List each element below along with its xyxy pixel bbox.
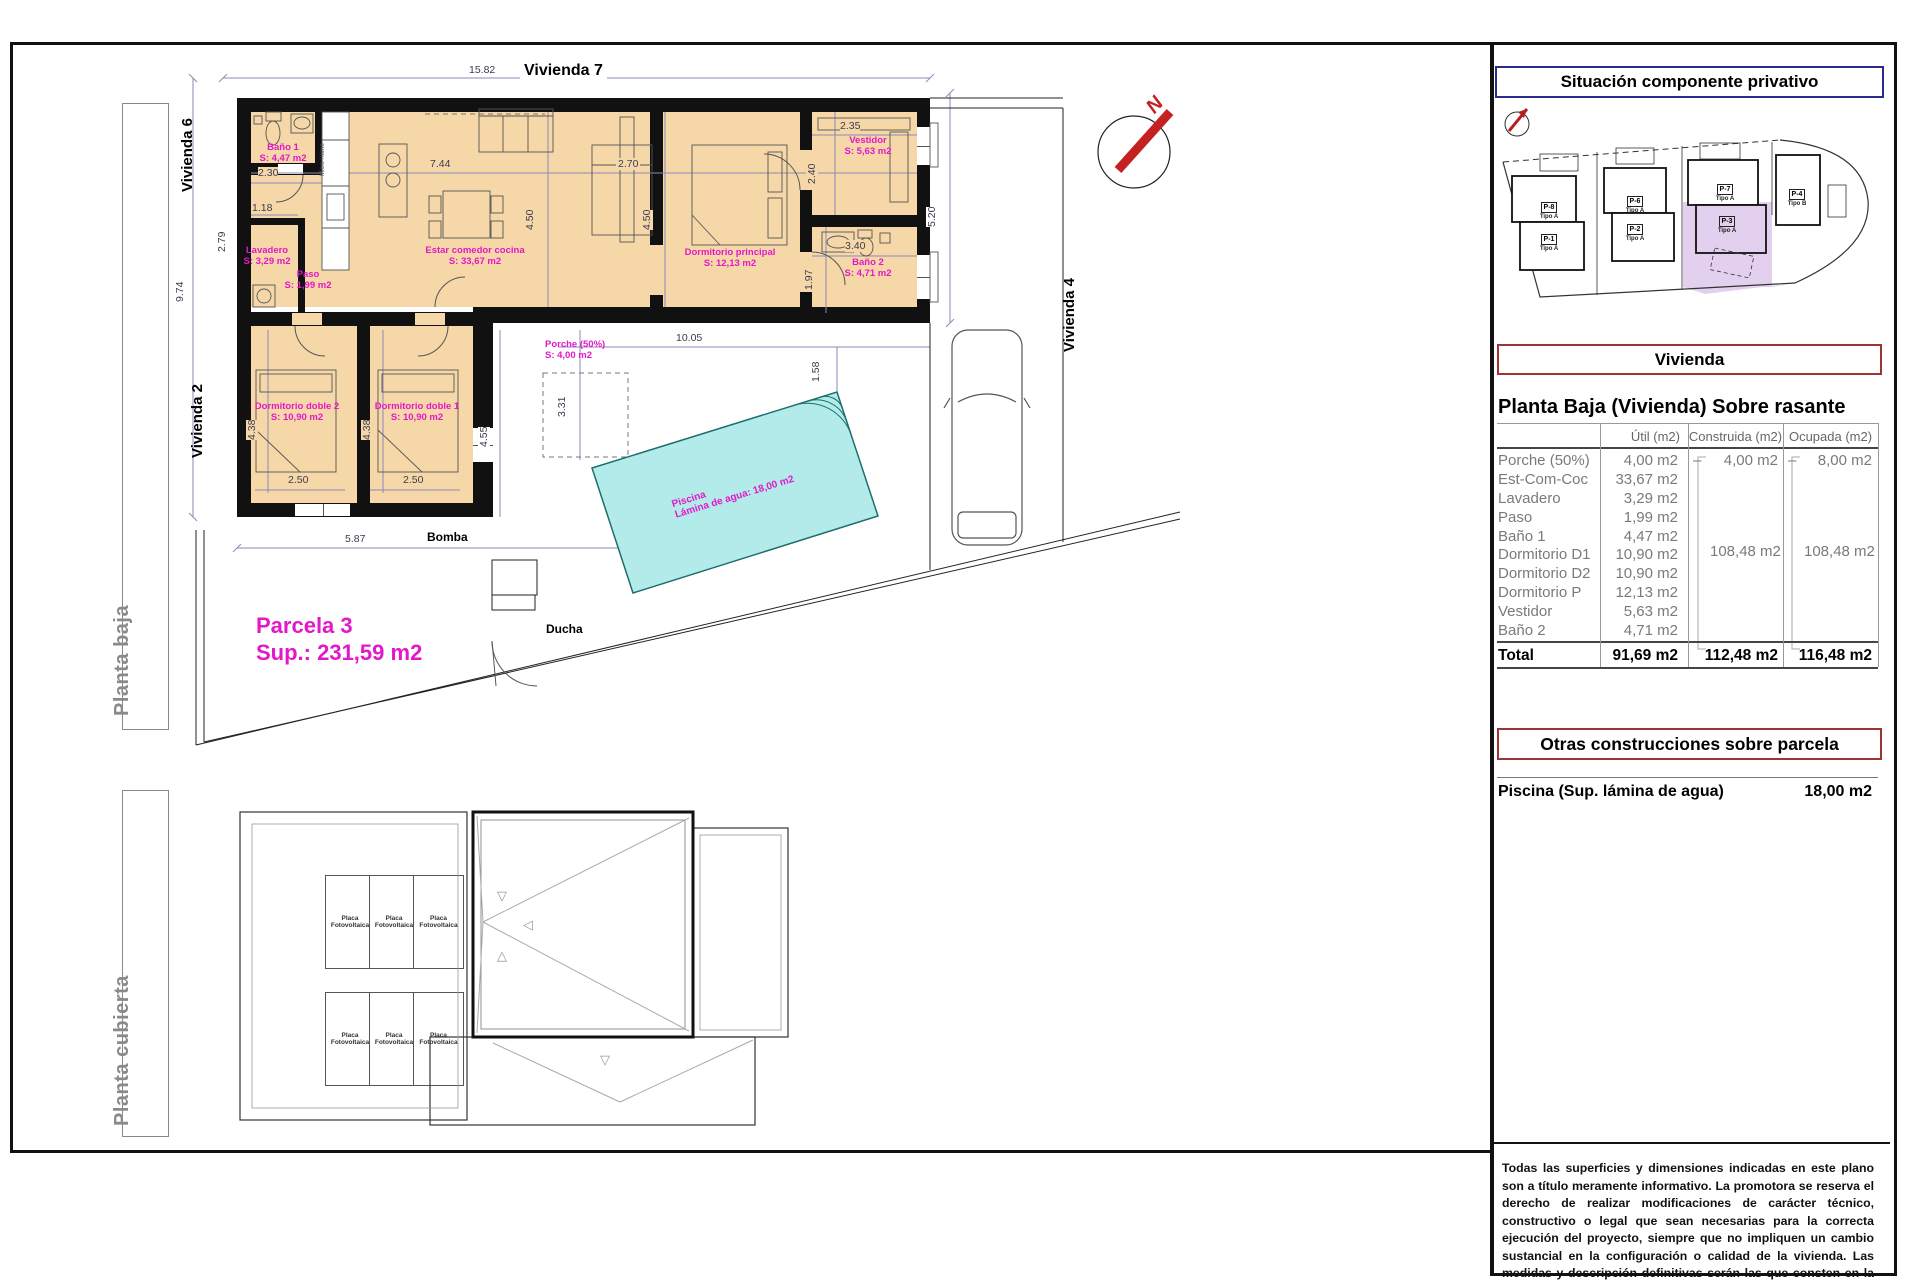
table-line [1878,423,1879,667]
room-bano2: Baño 2 S: 4,71 m2 [828,258,908,279]
construida-value: 4,00 m2 [1724,452,1778,471]
dim: 2.70 [616,158,640,170]
vivienda6-label: Vivienda 6 [180,118,196,192]
vivienda2-label: Vivienda 2 [190,384,206,458]
parcel-tag-p2: P-2 Tipo A [1620,218,1650,243]
parcel-tipo: Tipo A [1620,236,1650,243]
table-line [1783,423,1784,667]
util-value: 4,00 m2 [1600,452,1678,471]
room-area: S: 4,71 m2 [845,268,892,279]
disclaimer-text: Todas las superficies y dimensiones indi… [1502,1160,1874,1280]
util-value: 4,71 m2 [1600,622,1678,641]
otras-divider [1497,777,1878,778]
parcel-id: P-6 [1627,196,1644,207]
room-porche: Porche (50%) S: 4,00 m2 [545,340,631,361]
parcel-tag-p3: P-3 Tipo A [1712,210,1742,235]
room-area: S: 5,63 m2 [845,146,892,157]
util-value: 3,29 m2 [1600,490,1678,509]
dim: 4.38 [246,420,258,440]
bomba-label: Bomba [424,530,471,544]
table-line [1688,423,1689,667]
parcela-name: Parcela 3 [256,612,422,639]
dim: 10.05 [676,332,702,344]
row-label: Baño 2 [1498,622,1598,641]
col-header-ocupada: Ocupada (m2) [1783,429,1878,444]
vivienda-titlebox: Vivienda [1497,344,1882,375]
row-label: Lavadero [1498,490,1598,509]
room-vestidor: Vestidor S: 5,63 m2 [828,136,908,157]
room-paso: Paso S: 1,99 m2 [278,270,338,291]
room-area: S: 10,90 m2 [391,412,443,423]
util-value: 1,99 m2 [1600,509,1678,528]
piscina-row-value: 18,00 m2 [1772,783,1872,801]
room-name: Lavadero [246,245,288,256]
table-col-util: 4,00 m2 33,67 m2 3,29 m2 1,99 m2 4,47 m2… [1600,452,1678,641]
otras-titlebox: Otras construcciones sobre parcela [1497,728,1882,760]
dash: – [1693,452,1701,471]
vivienda4-label: Vivienda 4 [1062,278,1078,352]
total-util: 91,69 m2 [1600,647,1678,665]
dim: 4.50 [524,210,536,230]
room-area: S: 4,47 m2 [260,153,307,164]
room-area: S: 12,13 m2 [704,258,756,269]
dim: 1.18 [252,202,272,214]
col-header-construida: Construida (m2) [1688,429,1783,444]
row-label: Dormitorio P [1498,584,1598,603]
parcel-tipo: Tipo B [1782,201,1812,208]
construida-porche: – 4,00 m2 [1693,452,1778,471]
room-name: Dormitorio doble 2 [255,401,339,412]
room-lavadero: Lavadero S: 3,29 m2 [230,246,304,267]
table-line [1497,667,1878,669]
util-value: 10,90 m2 [1600,546,1678,565]
row-label: Est-Com-Coc [1498,471,1598,490]
parcela-sup: Sup.: 231,59 m2 [256,639,422,666]
ocupada-group-value: 108,48 m2 [1804,543,1875,562]
parcel-tipo: Tipo A [1534,214,1564,221]
room-name: Baño 2 [852,257,884,268]
parcel-id: P-4 [1789,189,1806,200]
room-area: S: 10,90 m2 [271,412,323,423]
room-name: Baño 1 [267,142,299,153]
dim: 2.40 [806,164,818,184]
room-area: S: 33,67 m2 [449,256,501,267]
construida-group-value: 108,48 m2 [1710,543,1781,562]
util-value: 4,47 m2 [1600,528,1678,547]
parcel-tag-p4: P-4 Tipo B [1782,183,1812,208]
parcel-tag-p7: P-7 Tipo A [1710,178,1740,203]
parcel-id: P-7 [1717,184,1734,195]
room-doble2: Dormitorio doble 2 S: 10,90 m2 [242,402,352,423]
parcel-id: P-8 [1541,202,1558,213]
row-label: Dormitorio D1 [1498,546,1598,565]
dash: – [1788,452,1796,471]
room-doble1: Dormitorio doble 1 S: 10,90 m2 [362,402,472,423]
vivienda-title: Vivienda [1655,350,1725,370]
room-area: S: 4,00 m2 [545,350,592,361]
col-header-util: Útil (m2) [1600,429,1680,444]
row-label: Dormitorio D2 [1498,565,1598,584]
situacion-titlebox: Situación componente privativo [1495,66,1884,98]
util-value: 33,67 m2 [1600,471,1678,490]
dim: 4.38 [361,420,373,440]
dim: 1.58 [810,362,822,382]
row-label: Paso [1498,509,1598,528]
parcela-title: Parcela 3 Sup.: 231,59 m2 [256,612,422,666]
table-row-labels: Porche (50%) Est-Com-Coc Lavadero Paso B… [1498,452,1598,641]
otras-title: Otras construcciones sobre parcela [1540,734,1839,755]
parcel-id: P-3 [1719,216,1736,227]
parcel-id: P-1 [1541,234,1558,245]
dim: 2.79 [216,232,228,252]
vivienda7-label: Vivienda 7 [520,62,607,80]
micro-horno-label: Micro Horno [320,143,328,176]
dim: 2.50 [288,474,308,486]
row-label: Vestidor [1498,603,1598,622]
dim: 4.50 [641,210,653,230]
parcel-tag-p8: P-8 Tipo A [1534,196,1564,221]
dim: 2.35 [840,120,860,132]
dim: 3.31 [556,397,568,417]
parcel-tipo: Tipo A [1620,208,1650,215]
row-label: Porche (50%) [1498,452,1598,471]
dim: 1.97 [803,270,815,290]
util-value: 5,63 m2 [1600,603,1678,622]
dim: 2.50 [403,474,423,486]
parcel-tipo: Tipo A [1534,246,1564,253]
dim: 2.30 [258,167,278,179]
total-label: Total [1498,647,1534,665]
dim: 5.20 [926,207,938,227]
room-name: Paso [297,269,320,280]
dim: 9.74 [174,282,186,302]
ocupada-value: 8,00 m2 [1818,452,1872,471]
row-label: Baño 1 [1498,528,1598,547]
situacion-title: Situación componente privativo [1561,72,1819,92]
total-ocupada: 116,48 m2 [1788,647,1872,665]
room-estar: Estar comedor cocina S: 33,67 m2 [410,246,540,267]
dim: 4.55 [478,427,490,447]
util-value: 10,90 m2 [1600,565,1678,584]
parcel-id: P-2 [1627,224,1644,235]
dim: 5.87 [345,533,365,545]
room-bano1: Baño 1 S: 4,47 m2 [250,143,316,164]
room-name: Porche (50%) [545,339,605,350]
parcel-tipo: Tipo A [1712,228,1742,235]
room-name: Vestidor [849,135,887,146]
room-name: Dormitorio principal [685,247,776,258]
drawing-sheet: Planta baja Planta cubierta Placa Fotovo… [0,0,1920,1280]
room-area: S: 1,99 m2 [285,280,332,291]
dim: 7.44 [428,158,452,170]
dim: 3.40 [845,240,865,252]
parcel-tag-p6: P-6 Tipo A [1620,190,1650,215]
ocupada-porche: – 8,00 m2 [1788,452,1872,471]
room-name: Estar comedor cocina [425,245,524,256]
room-dorm-principal: Dormitorio principal S: 12,13 m2 [670,248,790,269]
piscina-row-label: Piscina (Sup. lámina de agua) [1498,783,1724,801]
util-value: 12,13 m2 [1600,584,1678,603]
parcel-tag-p1: P-1 Tipo A [1534,228,1564,253]
total-construida: 112,48 m2 [1693,647,1778,665]
room-name: Dormitorio doble 1 [375,401,459,412]
section-title: Planta Baja (Vivienda) Sobre rasante [1498,396,1846,419]
dim-15-82: 15.82 [466,64,498,76]
room-area: S: 3,29 m2 [244,256,291,267]
parcel-tipo: Tipo A [1710,196,1740,203]
ducha-label: Ducha [546,622,583,636]
